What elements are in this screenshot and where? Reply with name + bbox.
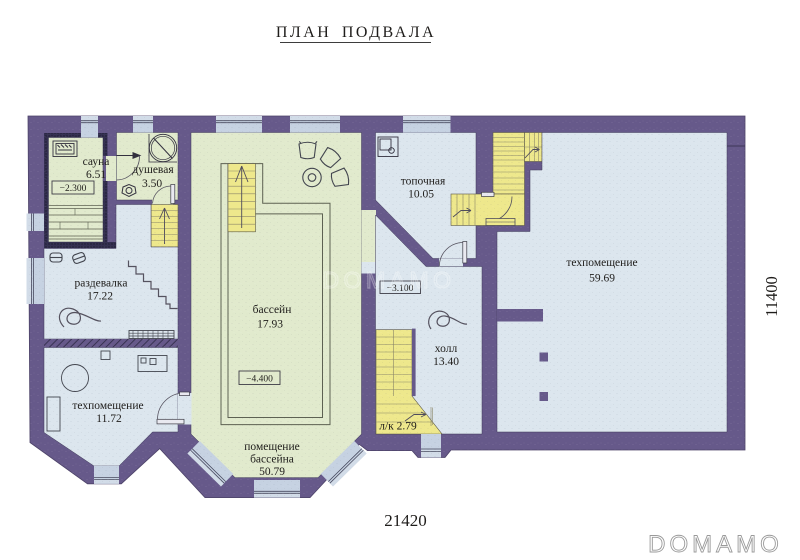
svg-text:6.51: 6.51	[86, 169, 106, 181]
svg-text:DOMAMO: DOMAMO	[322, 267, 455, 293]
svg-text:помещение: помещение	[244, 441, 299, 453]
svg-text:раздевалка: раздевалка	[75, 278, 128, 290]
svg-text:17.22: 17.22	[87, 291, 113, 303]
svg-text:59.69: 59.69	[589, 273, 615, 285]
svg-text:21420: 21420	[384, 511, 427, 530]
svg-text:техпомещение: техпомещение	[566, 257, 637, 269]
svg-text:11400: 11400	[762, 276, 781, 317]
svg-text:13.40: 13.40	[433, 356, 459, 368]
svg-text:50.79: 50.79	[259, 466, 285, 478]
svg-text:бассейна: бассейна	[250, 454, 294, 466]
svg-text:10.05: 10.05	[408, 189, 434, 201]
svg-text:−2.300: −2.300	[60, 184, 87, 194]
svg-text:ПЛАН ПОДВАЛА: ПЛАН ПОДВАЛА	[276, 24, 436, 41]
svg-text:холл: холл	[435, 343, 458, 355]
svg-text:л/к 2.79: л/к 2.79	[379, 421, 417, 433]
svg-text:−4.400: −4.400	[246, 375, 273, 385]
svg-text:бассейн: бассейн	[253, 304, 292, 316]
svg-text:техпомещение: техпомещение	[72, 400, 143, 412]
svg-text:11.72: 11.72	[96, 413, 122, 425]
svg-text:DOMAMO: DOMAMO	[648, 531, 783, 558]
svg-text:3.50: 3.50	[142, 178, 162, 190]
svg-text:душевая: душевая	[132, 164, 174, 176]
svg-text:17.93: 17.93	[257, 319, 283, 331]
svg-text:топочная: топочная	[401, 176, 446, 188]
svg-text:сауна: сауна	[83, 156, 110, 168]
